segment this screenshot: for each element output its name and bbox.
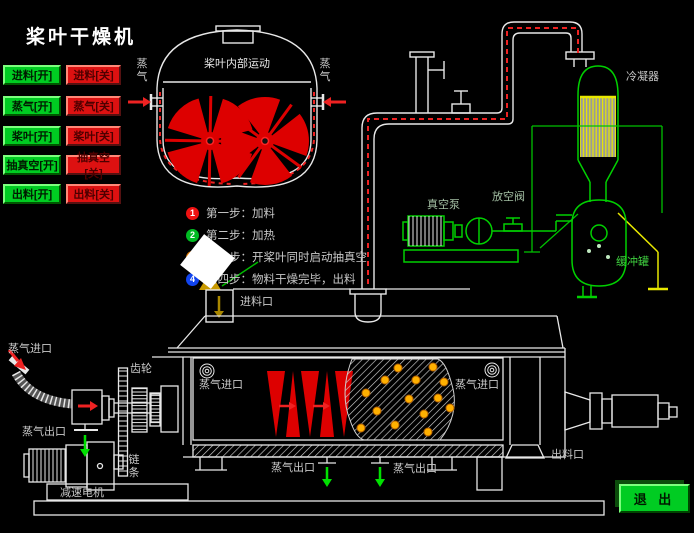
material-zone (345, 359, 454, 440)
ground-base (34, 501, 604, 515)
step-4-text: 第四步：物料干燥完毕，出料 (206, 271, 356, 287)
steam-label-left: 蒸气 (135, 58, 149, 84)
step-2-text: 第二步：加热 (206, 227, 275, 243)
vacuum-close-button[interactable]: 抽真空[关] (66, 155, 121, 175)
vent-valve-label: 放空阀 (492, 191, 525, 204)
steam-outlet-bottom1-label: 蒸气出口 (271, 462, 315, 475)
buffer-tank (556, 200, 626, 297)
steam-outlet-bottom2-label: 蒸气出口 (393, 463, 437, 476)
steam-inlet-hose-label: 蒸气进口 (8, 343, 52, 356)
discharge-open-button[interactable]: 出料[开] (3, 184, 61, 204)
vacuum-open-button[interactable]: 抽真空[开] (3, 155, 61, 175)
steam-flow-dash (368, 28, 578, 284)
spiral-icon-right (485, 363, 499, 377)
gear-label: 齿轮 (130, 363, 152, 376)
vacuum-pump (403, 216, 556, 262)
steam-inlet-body-right-label: 蒸气进口 (455, 379, 499, 392)
feed-open-button[interactable]: 进料[开] (3, 65, 61, 85)
vacuum-pump-label: 真空泵 (427, 199, 460, 212)
vapor-pipe (350, 22, 594, 322)
rotary-joint-arrow (78, 401, 98, 411)
page-title: 桨叶干燥机 (26, 22, 136, 49)
exit-button[interactable]: 退 出 (619, 484, 690, 513)
steam-inlet-body-left-label: 蒸气进口 (199, 379, 243, 392)
discharge-port-label: 出料口 (551, 449, 584, 462)
feed-close-button[interactable]: 进料[关] (66, 65, 121, 85)
reducer-motor (24, 442, 188, 500)
steam-outlet-left-label: 蒸气出口 (22, 426, 66, 439)
step-1-badge: 1 (186, 207, 199, 220)
steam-label-right: 蒸气 (318, 58, 332, 84)
chain-label: 链条 (127, 454, 141, 480)
steam-close-button[interactable]: 蒸气[关] (66, 96, 121, 116)
paddle-close-button[interactable]: 桨叶[关] (66, 126, 121, 146)
discharge-shaft-end (565, 392, 677, 430)
hmi-screen: 桨叶干燥机 桨叶内部运动 蒸气 蒸气 冷凝器 真空泵 放空阀 缓冲罐 进料口 蒸… (0, 0, 694, 533)
spiral-icon-left (200, 364, 214, 378)
feed-port-label: 进料口 (240, 296, 273, 309)
condenser (578, 66, 618, 202)
vessel-motion-label: 桨叶内部运动 (204, 58, 270, 71)
steam-open-button[interactable]: 蒸气[开] (3, 96, 61, 116)
condenser-label: 冷凝器 (626, 71, 659, 84)
reducer-motor-label: 减速电机 (60, 487, 104, 500)
buffer-tank-label: 缓冲罐 (616, 256, 649, 269)
paddle-zone (267, 371, 353, 437)
paddle-open-button[interactable]: 桨叶[开] (3, 126, 61, 146)
step-item-1: 1 第一步：加料 (186, 205, 275, 221)
discharge-close-button[interactable]: 出料[关] (66, 184, 121, 204)
step-2-badge: 2 (186, 229, 199, 242)
step-1-text: 第一步：加料 (206, 205, 275, 221)
